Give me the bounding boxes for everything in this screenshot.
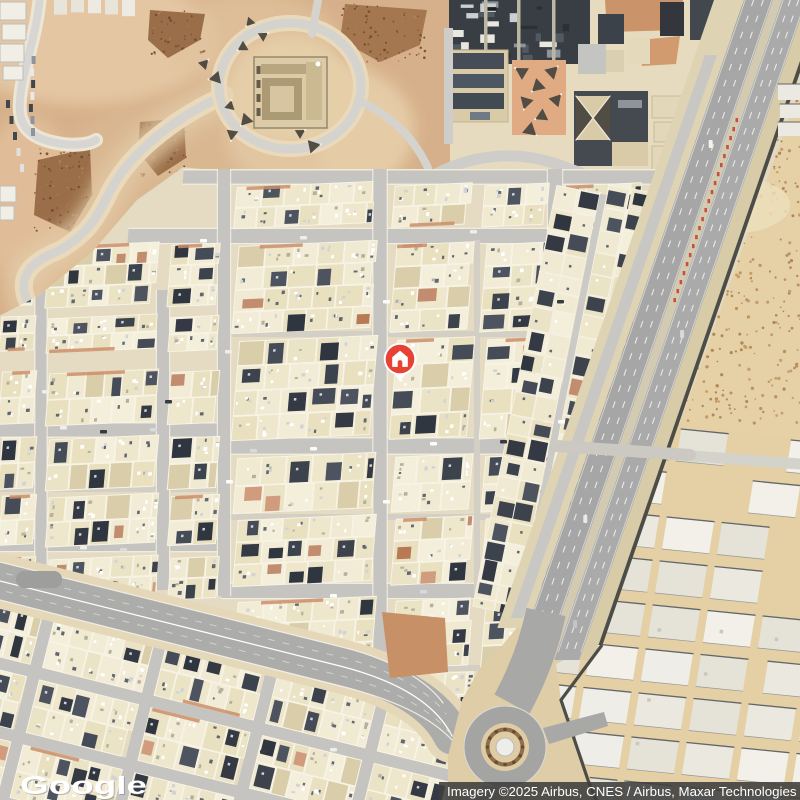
svg-text:Imagery ©2025 Airbus, CNES / A: Imagery ©2025 Airbus, CNES / Airbus, Max… xyxy=(447,784,797,799)
svg-text:Google: Google xyxy=(20,772,147,800)
